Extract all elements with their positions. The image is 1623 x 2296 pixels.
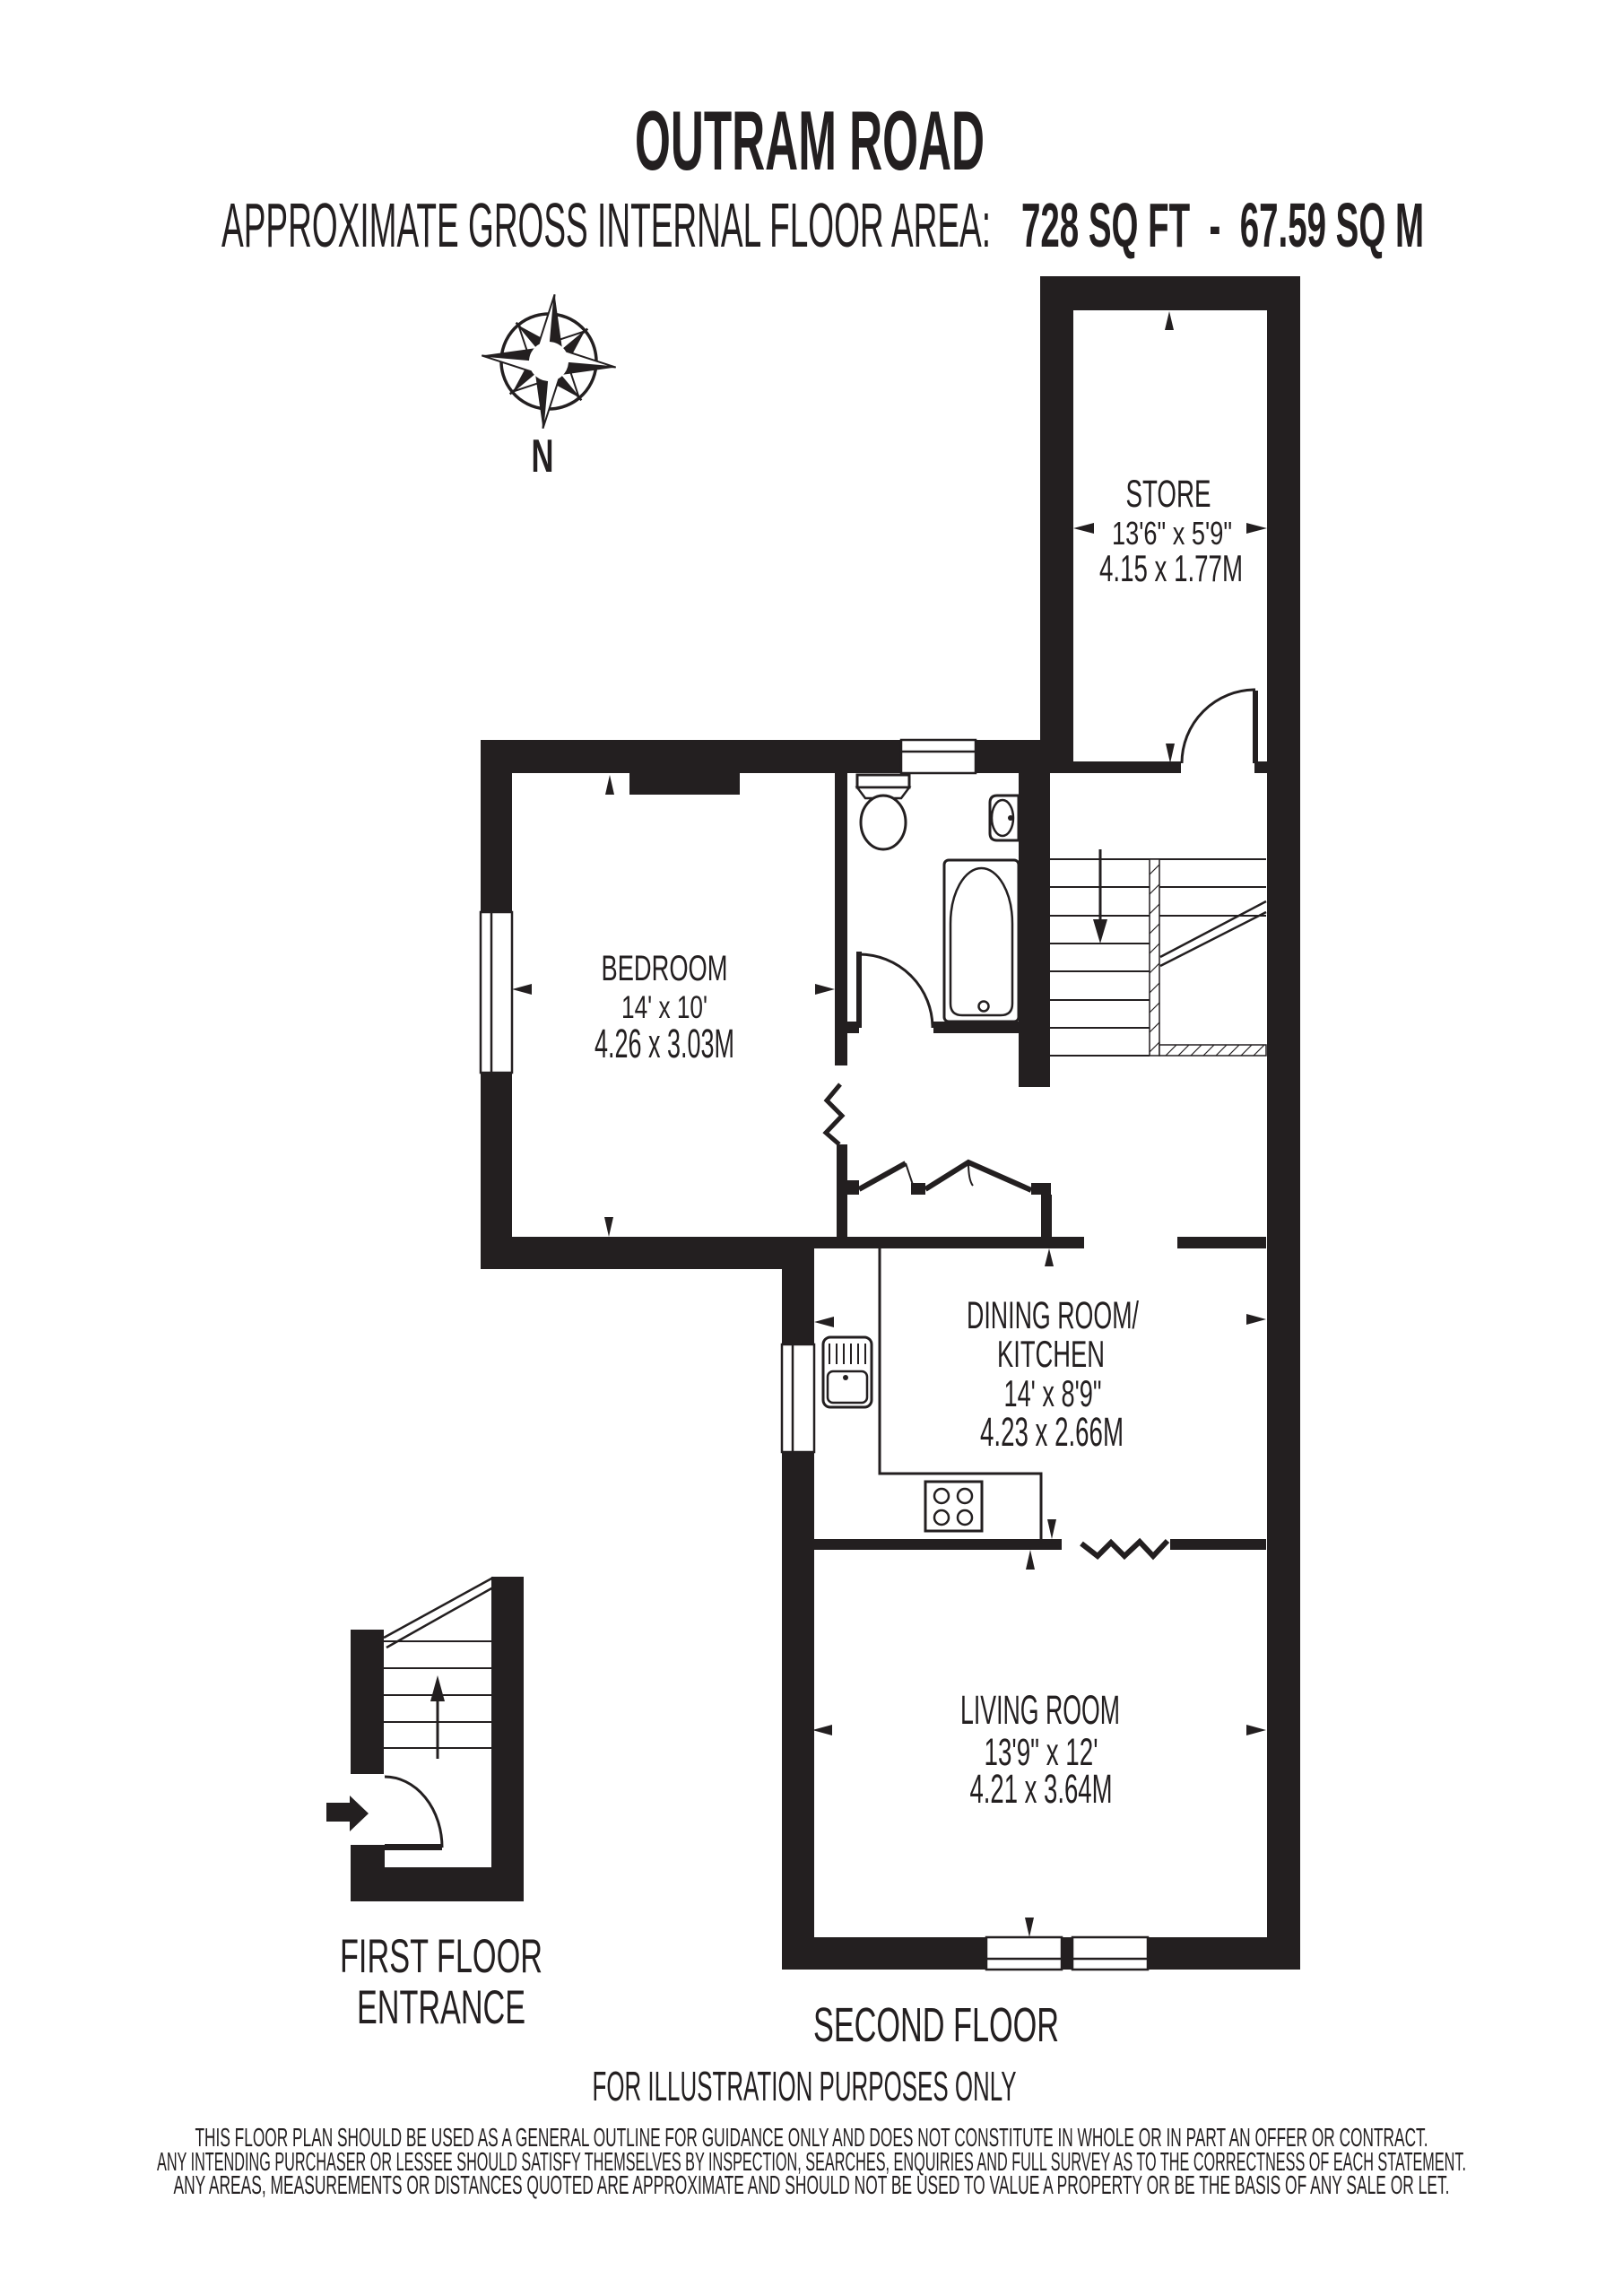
svg-text:SECOND FLOOR: SECOND FLOOR bbox=[813, 1998, 1059, 2052]
svg-text:4.23 x 2.66M: 4.23 x 2.66M bbox=[980, 1409, 1124, 1455]
svg-text:FOR ILLUSTRATION PURPOSES ONLY: FOR ILLUSTRATION PURPOSES ONLY bbox=[593, 2063, 1017, 2109]
svg-text:KITCHEN: KITCHEN bbox=[997, 1333, 1105, 1375]
svg-text:OUTRAM ROAD: OUTRAM ROAD bbox=[635, 93, 985, 187]
svg-text:BEDROOM: BEDROOM bbox=[602, 949, 728, 988]
svg-text:ENTRANCE: ENTRANCE bbox=[357, 1981, 525, 2034]
svg-text:728 SQ FT - 67.59 SQ M: 728 SQ FT - 67.59 SQ M bbox=[1021, 190, 1424, 260]
svg-text:DINING ROOM/: DINING ROOM/ bbox=[967, 1294, 1139, 1337]
svg-text:4.26 x 3.03M: 4.26 x 3.03M bbox=[595, 1021, 734, 1066]
svg-text:ANY AREAS, MEASUREMENTS OR DIS: ANY AREAS, MEASUREMENTS OR DISTANCES QUO… bbox=[174, 2171, 1450, 2200]
svg-text:FIRST FLOOR: FIRST FLOOR bbox=[340, 1930, 542, 1983]
svg-text:APPROXIMATE GROSS INTERNAL FLO: APPROXIMATE GROSS INTERNAL FLOOR AREA: bbox=[221, 190, 991, 260]
svg-text:4.15 x 1.77M: 4.15 x 1.77M bbox=[1099, 547, 1243, 589]
svg-text:STORE: STORE bbox=[1126, 473, 1211, 516]
svg-text:LIVING ROOM: LIVING ROOM bbox=[960, 1687, 1120, 1733]
svg-text:14' x 8'9": 14' x 8'9" bbox=[1004, 1372, 1102, 1414]
svg-text:13'6" x 5'9": 13'6" x 5'9" bbox=[1112, 515, 1232, 552]
svg-text:4.21 x 3.64M: 4.21 x 3.64M bbox=[970, 1766, 1113, 1812]
svg-text:N: N bbox=[532, 430, 554, 483]
